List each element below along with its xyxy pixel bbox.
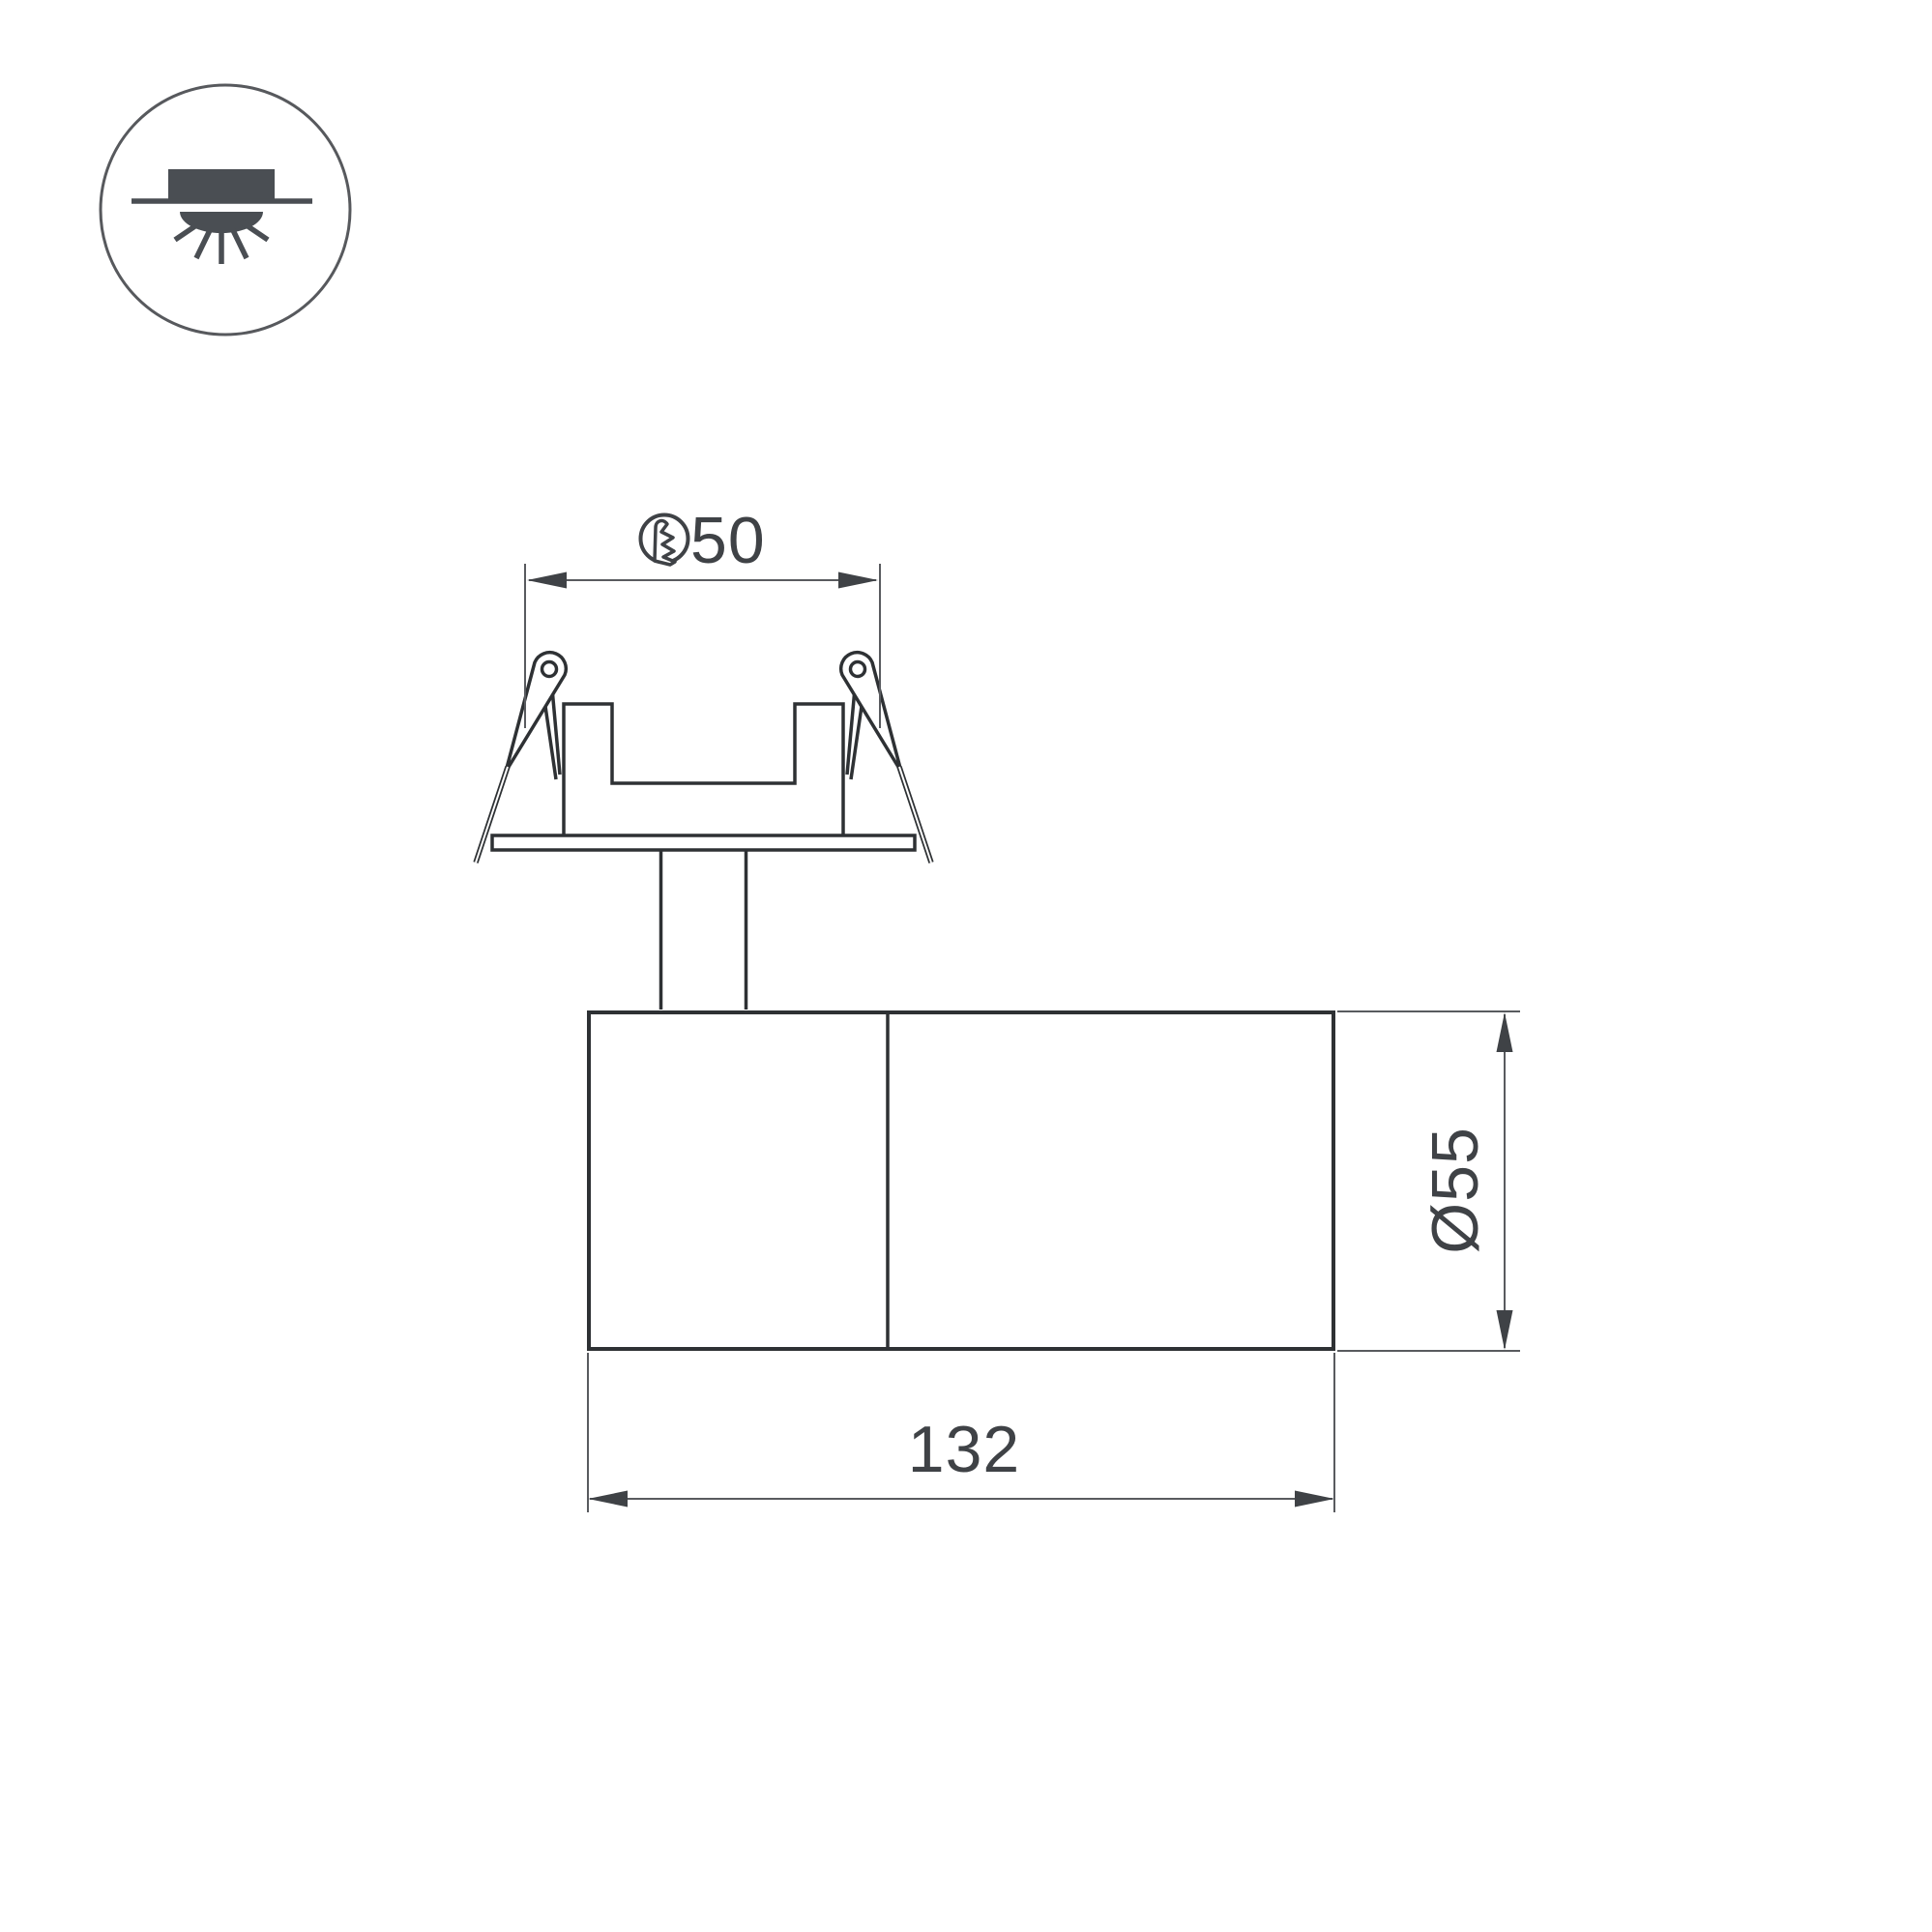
dimension-diameter: Ø55 [1337, 1011, 1520, 1351]
mounting-bracket-channel [564, 704, 843, 836]
spring-pivot-hole [542, 662, 557, 677]
spring-clip-left [476, 653, 566, 863]
arrow-down-icon [1497, 1310, 1513, 1350]
fixture-drawing [476, 653, 1333, 1349]
spring-pivot-hole [851, 662, 865, 677]
arrow-up-icon [1497, 1012, 1513, 1052]
swivel-stem [661, 850, 746, 1010]
arrow-right-icon [838, 572, 878, 589]
arrow-left-icon [588, 1491, 628, 1508]
arrow-left-icon [527, 572, 567, 589]
hole-cutout-icon [641, 515, 688, 566]
drawing-canvas: 50 Ø55 132 [0, 0, 1932, 1932]
length-dim-label: 132 [908, 1413, 1020, 1486]
diameter-dim-label: Ø55 [1419, 1127, 1492, 1254]
cutout-dim-label: 50 [690, 504, 766, 577]
technical-drawing-page: 50 Ø55 132 [0, 0, 1932, 1932]
lamp-body [589, 1012, 1333, 1349]
legend-housing [168, 169, 275, 200]
trim-flange-plate [492, 835, 915, 850]
recessed-downlight-mounting-icon [101, 85, 350, 335]
dimension-cutout: 50 [525, 504, 880, 728]
spring-clip-right [841, 653, 931, 863]
dimension-length: 132 [588, 1353, 1334, 1512]
arrow-right-icon [1295, 1491, 1334, 1508]
legend-circle [101, 85, 350, 335]
